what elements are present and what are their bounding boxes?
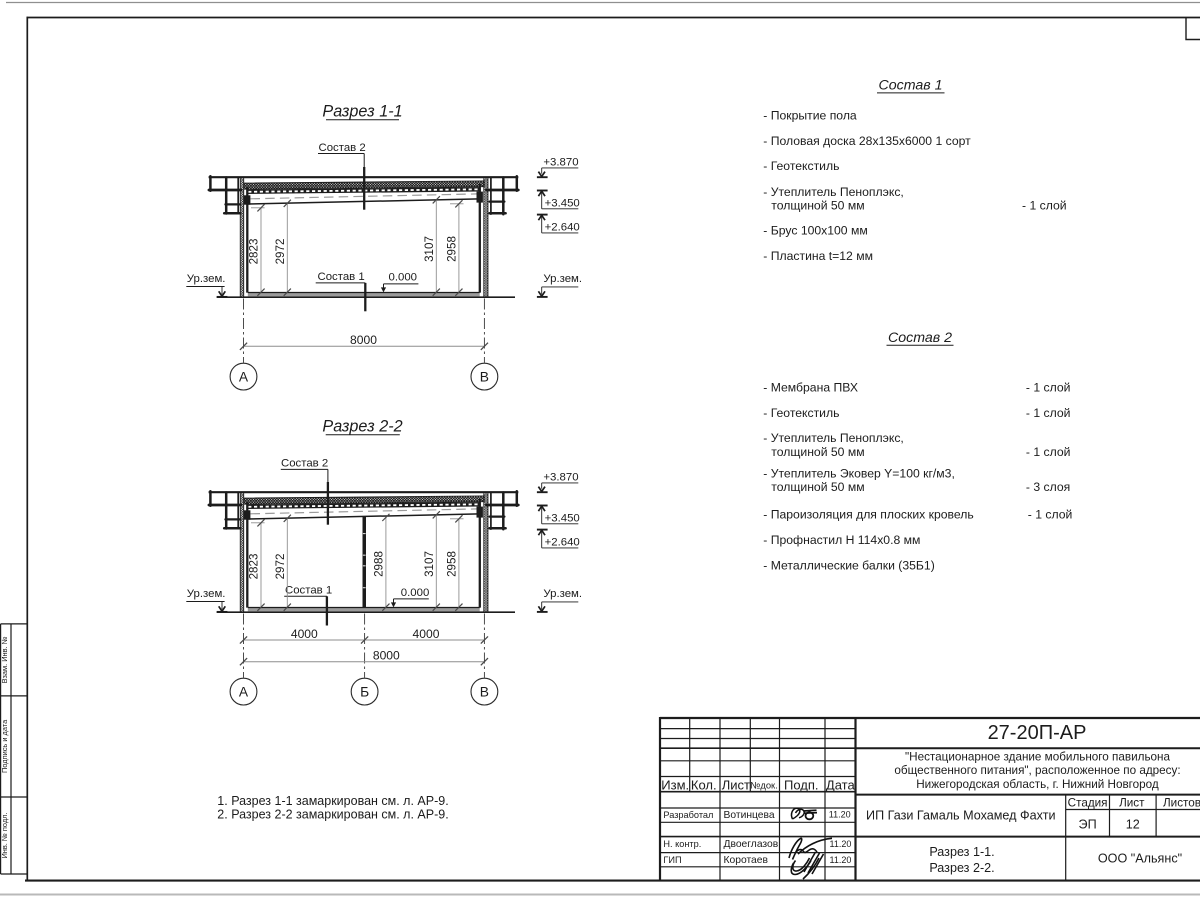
svg-text:Лист: Лист xyxy=(1119,797,1145,810)
svg-text:+3.450: +3.450 xyxy=(545,197,580,209)
svg-text:толщиной 50 мм: толщиной 50 мм xyxy=(771,480,864,494)
svg-text:2988: 2988 xyxy=(373,551,386,577)
svg-text:12: 12 xyxy=(1126,818,1140,832)
svg-text:- Геотекстиль: - Геотекстиль xyxy=(763,159,839,173)
svg-text:- 1 слой: - 1 слой xyxy=(1026,445,1071,459)
svg-text:1. Разрез 1-1 замаркирован см.: 1. Разрез 1-1 замаркирован см. л. АР-9. xyxy=(217,794,448,808)
svg-text:Двоеглазов: Двоеглазов xyxy=(724,839,779,850)
svg-text:- Утеплитель Пеноплэкс,: - Утеплитель Пеноплэкс, xyxy=(763,431,904,445)
svg-text:ИП Гази Гамаль Мохамед Фахти: ИП Гази Гамаль Мохамед Фахти xyxy=(866,808,1056,822)
svg-text:общественного питания", распол: общественного питания", расположенное по… xyxy=(894,764,1180,777)
svg-text:Подпись и дата: Подпись и дата xyxy=(0,719,9,773)
svg-text:- 1 слой: - 1 слой xyxy=(1028,508,1073,522)
svg-text:толщиной 50 мм: толщиной 50 мм xyxy=(771,198,864,212)
svg-text:- Мембрана ПВХ: - Мембрана ПВХ xyxy=(763,381,858,395)
svg-text:Ур.зем.: Ур.зем. xyxy=(543,273,582,285)
svg-text:- Пластина t=12 мм: - Пластина t=12 мм xyxy=(763,249,873,263)
svg-text:+2.640: +2.640 xyxy=(545,536,580,548)
svg-text:- Половая доска 28х135х6000 1: - Половая доска 28х135х6000 1 сорт xyxy=(763,134,971,148)
svg-text:2958: 2958 xyxy=(445,551,458,577)
svg-text:Состав 1: Состав 1 xyxy=(318,271,365,283)
svg-text:Кол.: Кол. xyxy=(691,777,717,792)
svg-text:8000: 8000 xyxy=(350,333,377,347)
svg-text:- Утеплитель Эковер Y=100 кг/м: - Утеплитель Эковер Y=100 кг/м3, xyxy=(763,467,955,481)
svg-text:- Профнастил Н 114х0.8 мм: - Профнастил Н 114х0.8 мм xyxy=(763,533,920,547)
svg-text:0.000: 0.000 xyxy=(389,272,418,284)
svg-text:Ур.зем.: Ур.зем. xyxy=(187,273,226,285)
svg-text:Взам. Инв. №: Взам. Инв. № xyxy=(0,636,9,683)
svg-text:Вотинцева: Вотинцева xyxy=(724,810,775,821)
svg-text:Б: Б xyxy=(360,684,369,699)
svg-text:- Геотекстиль: - Геотекстиль xyxy=(763,406,839,420)
svg-text:Состав 2: Состав 2 xyxy=(319,142,366,154)
svg-text:- Брус 100х100 мм: - Брус 100х100 мм xyxy=(763,224,867,238)
svg-text:Разрез 1-1.: Разрез 1-1. xyxy=(929,845,994,859)
svg-text:2. Разрез 2-2 замаркирован см.: 2. Разрез 2-2 замаркирован см. л. АР-9. xyxy=(217,808,448,822)
svg-text:Стадия: Стадия xyxy=(1068,797,1108,810)
svg-text:Н. контр.: Н. контр. xyxy=(663,839,701,849)
svg-text:+3.870: +3.870 xyxy=(543,156,578,168)
svg-text:ГИП: ГИП xyxy=(663,855,681,865)
svg-text:В: В xyxy=(480,369,489,384)
svg-text:4000: 4000 xyxy=(413,627,440,641)
svg-text:- 1 слой: - 1 слой xyxy=(1026,406,1071,420)
svg-text:толщиной 50 мм: толщиной 50 мм xyxy=(771,445,864,459)
svg-text:Подп.: Подп. xyxy=(784,777,819,792)
svg-text:11.20: 11.20 xyxy=(830,855,852,865)
svg-text:Дата: Дата xyxy=(826,777,856,792)
svg-text:Состав 2: Состав 2 xyxy=(281,458,328,470)
svg-text:№док.: №док. xyxy=(750,780,777,791)
svg-text:0.000: 0.000 xyxy=(401,587,430,599)
svg-text:2958: 2958 xyxy=(445,236,458,262)
svg-text:+2.640: +2.640 xyxy=(545,221,580,233)
svg-text:8000: 8000 xyxy=(373,649,400,663)
svg-text:Состав 2: Состав 2 xyxy=(888,330,952,346)
svg-text:В: В xyxy=(480,684,489,699)
svg-text:"Нестационарное здание мобильн: "Нестационарное здание мобильного павиль… xyxy=(905,751,1170,764)
svg-text:2972: 2972 xyxy=(274,554,287,580)
svg-text:Разрез 2-2: Разрез 2-2 xyxy=(322,418,402,436)
svg-text:2972: 2972 xyxy=(274,239,287,265)
svg-text:- 1 слой: - 1 слой xyxy=(1026,381,1071,395)
svg-text:+3.450: +3.450 xyxy=(545,512,580,524)
svg-text:- Пароизоляция для плоских кро: - Пароизоляция для плоских кровель xyxy=(763,508,973,522)
svg-text:- Металлические балки (35Б1): - Металлические балки (35Б1) xyxy=(763,559,934,573)
svg-text:Ур.зем.: Ур.зем. xyxy=(187,588,226,600)
svg-text:Листов: Листов xyxy=(1163,797,1200,810)
svg-text:Состав 1: Состав 1 xyxy=(878,78,942,94)
svg-text:3107: 3107 xyxy=(423,236,436,262)
svg-text:Ур.зем.: Ур.зем. xyxy=(543,588,582,600)
svg-text:Коротаев: Коротаев xyxy=(724,855,769,866)
svg-text:Разрез 1-1: Разрез 1-1 xyxy=(322,103,402,121)
svg-text:ЭП: ЭП xyxy=(1079,818,1097,832)
svg-text:+3.870: +3.870 xyxy=(543,471,578,483)
svg-text:Состав 1: Состав 1 xyxy=(285,585,332,597)
svg-text:- 1 слой: - 1 слой xyxy=(1022,198,1067,212)
svg-text:Инв. № подл.: Инв. № подл. xyxy=(0,812,9,858)
svg-text:Изм.: Изм. xyxy=(661,777,689,792)
svg-text:ООО "Альянс": ООО "Альянс" xyxy=(1098,852,1182,866)
svg-text:Нижегородская область, г. Нижн: Нижегородская область, г. Нижний Новгоро… xyxy=(916,778,1159,791)
svg-text:Лист: Лист xyxy=(722,777,750,792)
svg-text:А: А xyxy=(239,369,249,384)
svg-text:- Утеплитель Пеноплэкс,: - Утеплитель Пеноплэкс, xyxy=(763,185,904,199)
svg-text:Разработал: Разработал xyxy=(663,810,713,820)
svg-text:11.20: 11.20 xyxy=(829,810,851,820)
svg-text:А: А xyxy=(239,684,249,699)
svg-text:27-20П-АР: 27-20П-АР xyxy=(988,722,1087,744)
svg-text:2823: 2823 xyxy=(248,554,261,580)
svg-text:4000: 4000 xyxy=(291,627,318,641)
svg-text:Разрез 2-2.: Разрез 2-2. xyxy=(929,861,994,875)
svg-text:2823: 2823 xyxy=(248,239,261,265)
svg-text:11.20: 11.20 xyxy=(830,839,852,849)
svg-text:- Покрытие пола: - Покрытие пола xyxy=(763,108,857,122)
svg-text:- 3 слоя: - 3 слоя xyxy=(1026,480,1070,494)
svg-text:3107: 3107 xyxy=(423,551,436,577)
